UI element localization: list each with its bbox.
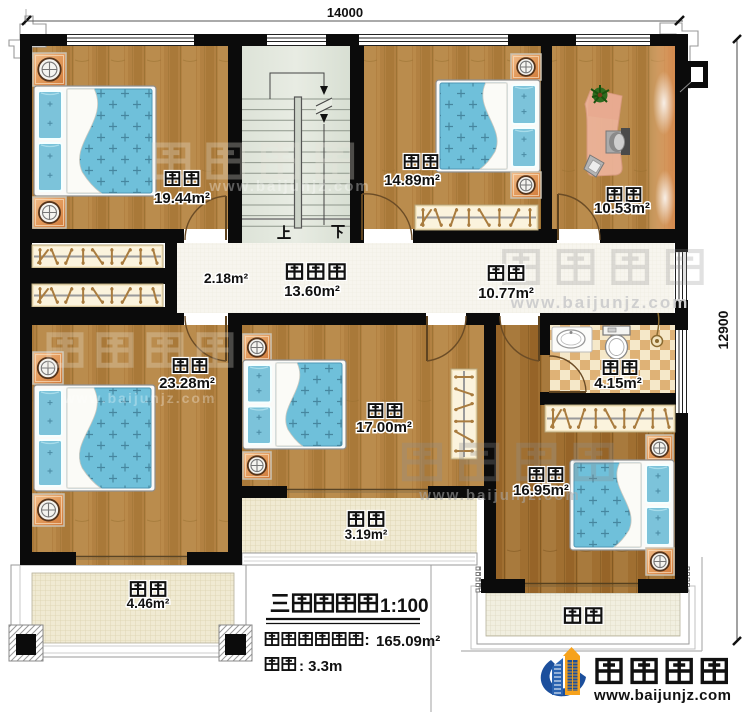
svg-text:14.89m²: 14.89m² [384, 172, 440, 189]
svg-text:16.95m²: 16.95m² [513, 482, 569, 499]
svg-text:165.09m²: 165.09m² [376, 633, 440, 650]
svg-text:www.baijunjz.com: www.baijunjz.com [208, 178, 370, 195]
svg-text:14000: 14000 [327, 5, 363, 20]
svg-text:17.00m²: 17.00m² [356, 419, 412, 436]
svg-text:1:100: 1:100 [380, 596, 429, 617]
svg-text:www.baijunjz.com: www.baijunjz.com [510, 293, 690, 312]
svg-text:3.19m²: 3.19m² [345, 527, 388, 542]
svg-text:: 3.3m: : 3.3m [299, 658, 342, 675]
svg-text:19.44m²: 19.44m² [154, 190, 210, 207]
svg-text:4.46m²: 4.46m² [127, 596, 170, 611]
svg-text::: : [364, 632, 369, 649]
svg-text:10.53m²: 10.53m² [594, 200, 650, 217]
svg-text:2.18m²: 2.18m² [204, 270, 249, 286]
svg-text:23.28m²: 23.28m² [159, 375, 215, 392]
svg-text:13.60m²: 13.60m² [284, 283, 340, 300]
svg-text:10.77m²: 10.77m² [478, 285, 534, 302]
svg-text:12900: 12900 [715, 310, 731, 349]
svg-text:www.baijunjz.com: www.baijunjz.com [593, 687, 731, 704]
svg-text:4.15m²: 4.15m² [594, 375, 642, 392]
svg-text:www.baijunjz.com: www.baijunjz.com [63, 390, 217, 406]
